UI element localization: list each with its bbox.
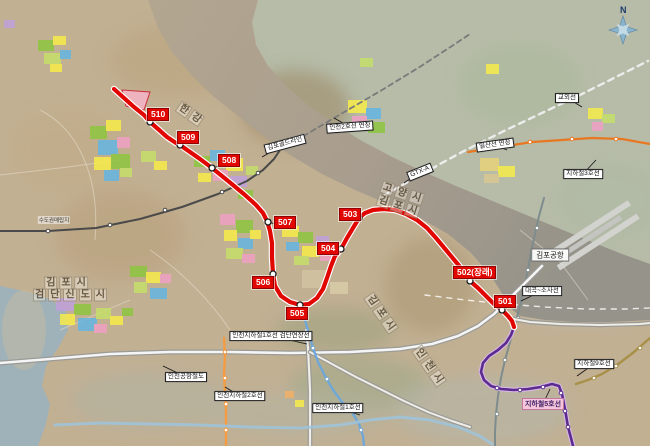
station-dot (163, 208, 167, 212)
line-label: 교외선 (555, 93, 579, 103)
station-label-502: 502(장래) (453, 266, 496, 279)
station-dot (265, 219, 271, 225)
station-dot (570, 137, 574, 141)
city-label: 검단신도시 (32, 289, 108, 302)
station-dot (614, 137, 618, 141)
line-label: 인천지하철2호선 (214, 391, 265, 401)
station-label-509: 509 (177, 131, 199, 144)
area-label: 수도권매립지 (38, 216, 70, 224)
line-label: 인천지하철1호선 검단연장선 (229, 331, 312, 341)
station-dot (220, 190, 224, 194)
station-dot (495, 386, 499, 390)
station-dot (108, 223, 112, 227)
station-dot (325, 377, 329, 381)
map-graphics: N (0, 0, 650, 446)
line-label: 대곡~소사선 (522, 286, 562, 296)
station-dot (566, 425, 570, 429)
line-label: 인천공항철도 (165, 372, 207, 382)
station-dot (359, 428, 363, 432)
station-dot (526, 268, 530, 272)
station-dot (46, 229, 50, 233)
line5-label: 지하철5호선 (522, 398, 564, 410)
station-dot (592, 376, 596, 380)
line-label: 김포공항 (531, 249, 569, 262)
station-label-508: 508 (218, 154, 240, 167)
station-label-501: 501 (494, 295, 516, 308)
station-dot (256, 171, 260, 175)
station-dot (541, 385, 545, 389)
station-dot (518, 388, 522, 392)
station-label-503: 503 (339, 208, 361, 221)
station-dot (209, 165, 215, 171)
line-label: 지하철3호선 (563, 169, 603, 179)
map-canvas: N 510509508507506505504503502(장래)501김포골드… (0, 0, 650, 446)
station-label-506: 506 (252, 276, 274, 289)
station-dot (495, 412, 499, 416)
station-dot (614, 364, 618, 368)
station-dot (499, 307, 505, 313)
station-dot (503, 358, 507, 362)
station-dot (223, 376, 227, 380)
station-label-504: 504 (317, 242, 339, 255)
station-dot (638, 346, 642, 350)
compass-n-label: N (620, 5, 627, 15)
station-label-507: 507 (274, 216, 296, 229)
line-label: 인천지하철1호선 (312, 403, 363, 413)
station-dot (223, 350, 227, 354)
station-dot (311, 346, 315, 350)
station-dot (224, 428, 228, 432)
line-label: 지하철9호선 (574, 359, 614, 369)
station-dot (535, 226, 539, 230)
station-label-505: 505 (286, 307, 308, 320)
station-dot (467, 278, 473, 284)
station-dot (559, 391, 563, 395)
station-label-510: 510 (147, 108, 169, 121)
station-dot (224, 402, 228, 406)
station-dot (528, 140, 532, 144)
